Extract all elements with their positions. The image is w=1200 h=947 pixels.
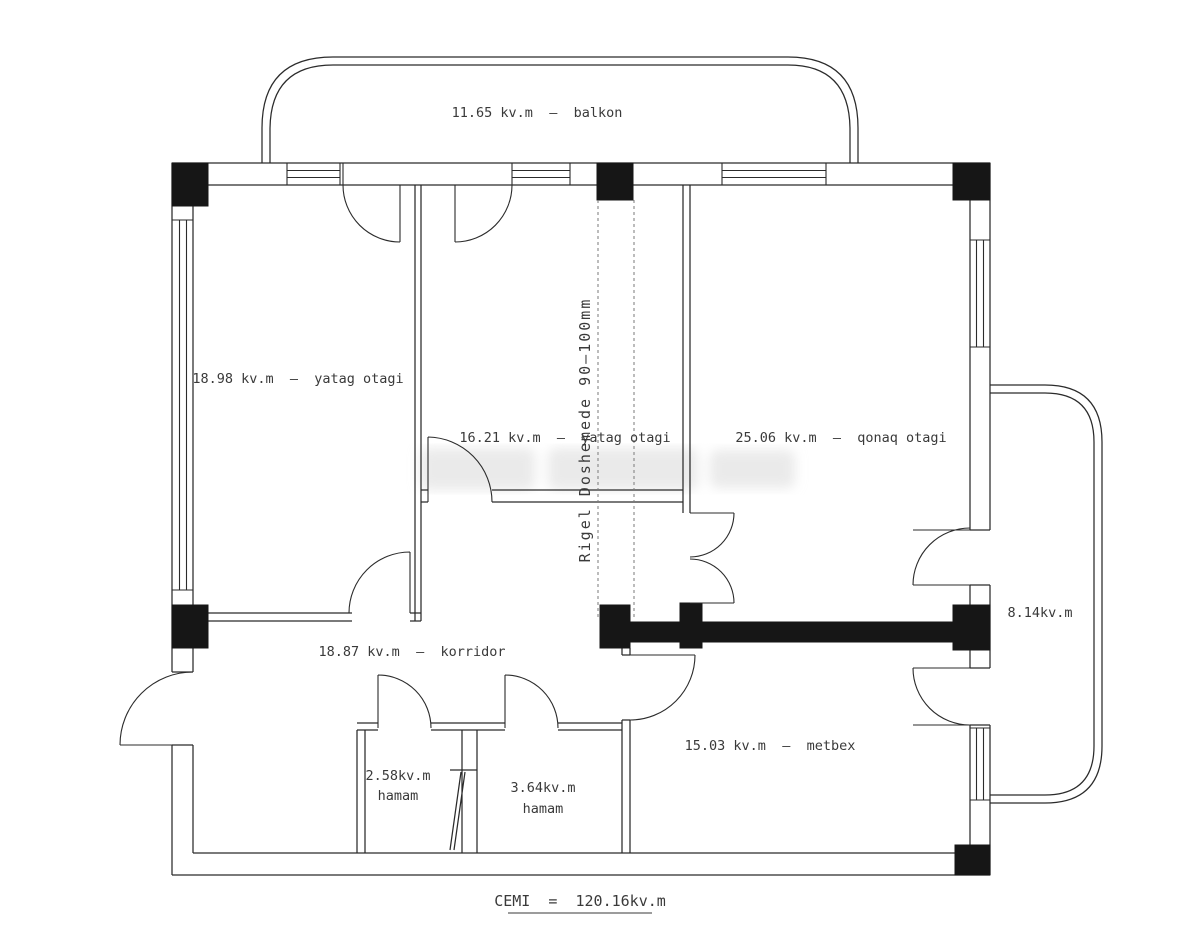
label-balcony-top: 11.65 kv.m – balkon	[452, 105, 623, 121]
label-corridor: 18.87 kv.m – korridor	[319, 644, 506, 660]
label-beam-note: Rigel Doshemede 90–100mm	[576, 298, 594, 563]
label-bath-small-area: 2.58kv.m	[365, 768, 430, 784]
label-bedroom-middle: 16.21 kv.m – yatag otagi	[459, 430, 670, 446]
beam-dashed-lines	[598, 200, 634, 620]
floor-plan-svg: 11.65 kv.m – balkon 18.98 kv.m – yatag o…	[0, 0, 1200, 947]
label-bedroom-left: 18.98 kv.m – yatag otagi	[192, 371, 403, 387]
label-bath-large-area: 3.64kv.m	[510, 780, 575, 796]
label-bath-small-name: hamam	[378, 788, 419, 804]
label-total: CEMI = 120.16kv.m	[494, 892, 666, 910]
floor-plan: 11.65 kv.m – balkon 18.98 kv.m – yatag o…	[0, 0, 1200, 947]
label-balcony-right: 8.14kv.m	[1007, 605, 1072, 621]
watermark	[420, 448, 795, 490]
doors	[120, 185, 970, 745]
label-bath-large-name: hamam	[523, 801, 564, 817]
label-kitchen: 15.03 kv.m – metbex	[685, 738, 856, 754]
label-living-room: 25.06 kv.m – qonaq otagi	[735, 430, 946, 446]
interior-walls	[193, 185, 690, 853]
